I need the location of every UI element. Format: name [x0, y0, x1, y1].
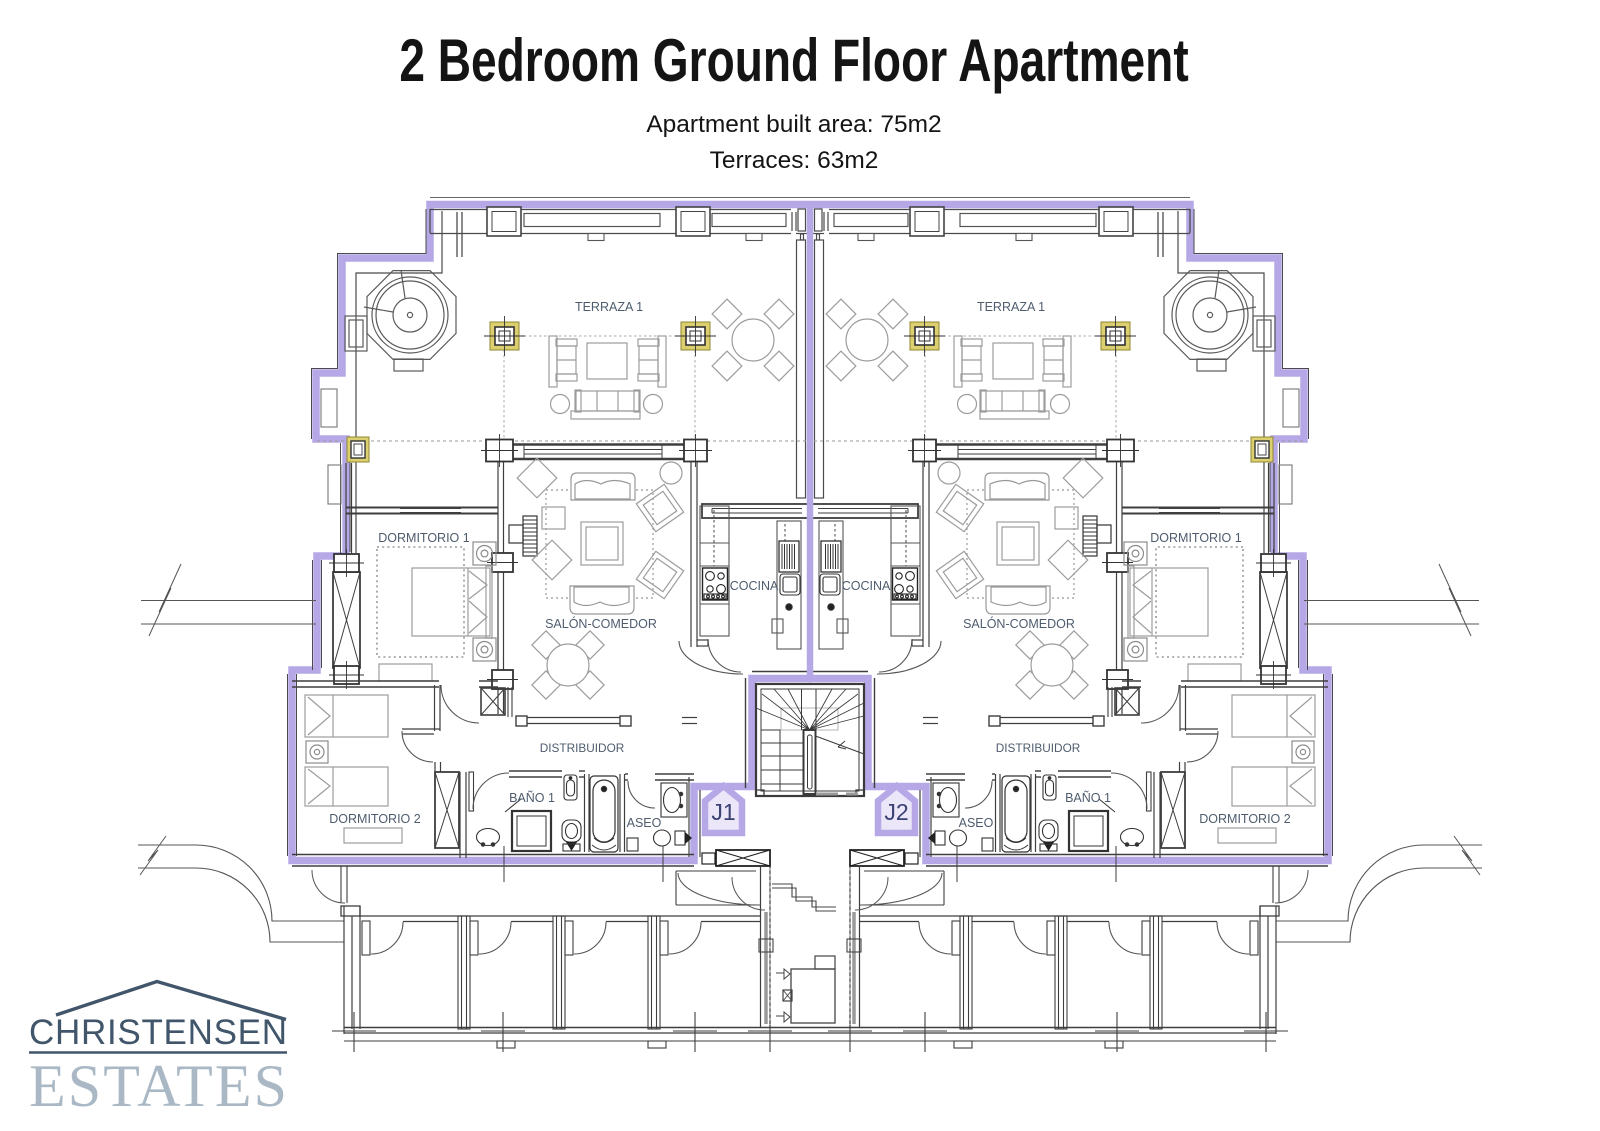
svg-text:ASEO: ASEO [627, 816, 662, 830]
svg-text:TERRAZA 1: TERRAZA 1 [575, 300, 643, 314]
svg-text:CHRISTENSEN: CHRISTENSEN [29, 1013, 287, 1052]
svg-text:SALÓN-COMEDOR: SALÓN-COMEDOR [545, 616, 657, 631]
svg-text:TERRAZA 1: TERRAZA 1 [977, 300, 1045, 314]
svg-text:DISTRIBUIDOR: DISTRIBUIDOR [996, 741, 1081, 755]
svg-text:J2: J2 [884, 799, 908, 825]
svg-text:DORMITORIO 2: DORMITORIO 2 [1199, 812, 1290, 826]
svg-text:BAÑO 1: BAÑO 1 [1065, 791, 1111, 805]
svg-text:J1: J1 [711, 799, 735, 825]
svg-text:SALÓN-COMEDOR: SALÓN-COMEDOR [963, 616, 1075, 631]
svg-text:DORMITORIO 2: DORMITORIO 2 [329, 812, 420, 826]
svg-text:DORMITORIO 1: DORMITORIO 1 [1150, 531, 1241, 545]
svg-text:BAÑO 1: BAÑO 1 [509, 791, 555, 805]
svg-text:DISTRIBUIDOR: DISTRIBUIDOR [540, 741, 625, 755]
svg-text:DORMITORIO 1: DORMITORIO 1 [378, 531, 469, 545]
svg-text:COCINA: COCINA [842, 579, 891, 593]
svg-text:COCINA: COCINA [730, 579, 779, 593]
svg-text:ESTATES: ESTATES [29, 1053, 287, 1119]
svg-text:ASEO: ASEO [959, 816, 994, 830]
